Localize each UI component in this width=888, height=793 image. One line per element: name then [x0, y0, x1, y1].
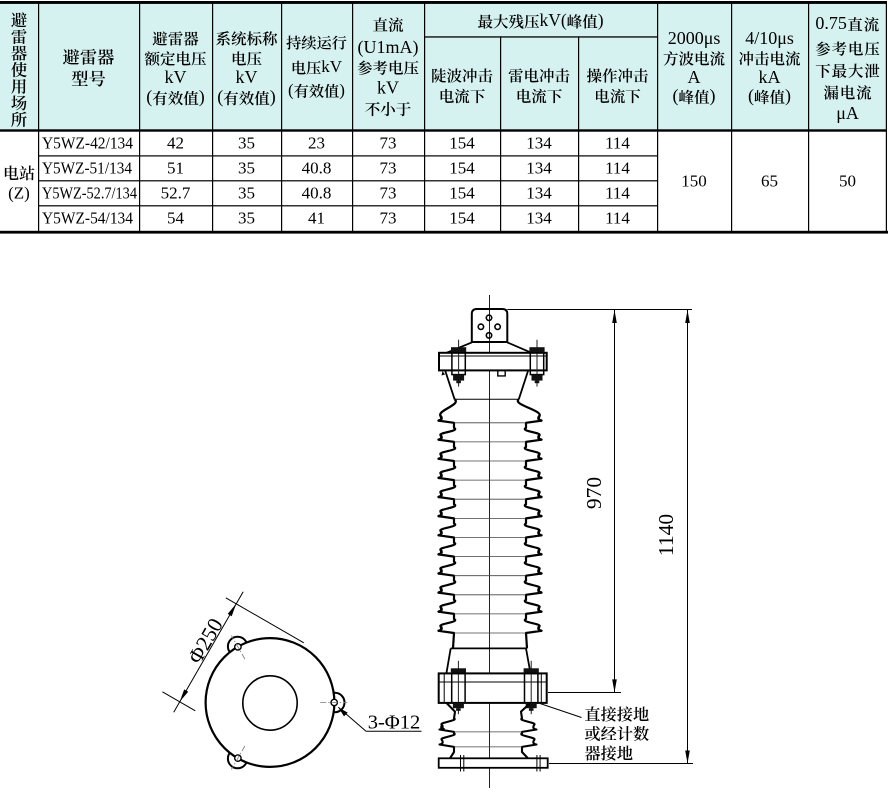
- svg-text:114: 114: [605, 184, 630, 203]
- svg-text:114: 114: [605, 134, 630, 153]
- svg-text:(: (: [288, 80, 294, 99]
- svg-text:41: 41: [308, 209, 325, 228]
- svg-text:2000μs: 2000μs: [668, 28, 721, 48]
- svg-text:(: (: [217, 87, 223, 108]
- svg-text:154: 154: [449, 159, 475, 178]
- svg-text:970: 970: [582, 477, 606, 509]
- svg-text:kV: kV: [165, 67, 187, 87]
- svg-text:35: 35: [238, 134, 255, 153]
- svg-text:kA: kA: [759, 67, 781, 87]
- svg-text:40.8: 40.8: [302, 159, 332, 178]
- svg-text:): ): [598, 10, 604, 30]
- svg-text:3-Φ12: 3-Φ12: [368, 711, 421, 733]
- svg-text:35: 35: [238, 184, 255, 203]
- svg-text:73: 73: [380, 134, 397, 153]
- svg-text:Y5WZ-51/134: Y5WZ-51/134: [42, 159, 132, 178]
- svg-text:154: 154: [449, 134, 475, 153]
- svg-text:150: 150: [681, 172, 707, 191]
- svg-text:1140: 1140: [654, 514, 678, 556]
- svg-text:134: 134: [526, 209, 552, 228]
- svg-text:): ): [710, 86, 716, 107]
- svg-text:kV: kV: [236, 67, 258, 87]
- svg-text:): ): [785, 86, 791, 107]
- svg-text:114: 114: [605, 159, 630, 178]
- svg-text:54: 54: [167, 209, 185, 228]
- svg-text:73: 73: [380, 209, 397, 228]
- svg-text:A: A: [688, 67, 701, 87]
- svg-text:(U1mA): (U1mA): [358, 37, 419, 58]
- svg-text:154: 154: [449, 209, 475, 228]
- svg-text:134: 134: [526, 184, 552, 203]
- svg-text:kV: kV: [377, 77, 399, 97]
- svg-text:23: 23: [308, 134, 325, 153]
- svg-text:52.7: 52.7: [161, 184, 191, 203]
- svg-text:154: 154: [449, 184, 475, 203]
- svg-text:65: 65: [761, 172, 778, 191]
- svg-text:(: (: [673, 86, 679, 107]
- svg-text:): ): [339, 80, 345, 99]
- svg-text:μA: μA: [836, 103, 859, 123]
- svg-text:134: 134: [526, 134, 552, 153]
- svg-text:114: 114: [605, 209, 630, 228]
- svg-text:Y5WZ-42/134: Y5WZ-42/134: [42, 134, 133, 153]
- svg-text:40.8: 40.8: [302, 184, 332, 203]
- svg-text:73: 73: [380, 184, 397, 203]
- svg-text:(: (: [146, 87, 152, 108]
- svg-text:): ): [270, 87, 276, 108]
- svg-text:35: 35: [238, 209, 255, 228]
- svg-text:(: (: [748, 86, 754, 107]
- svg-text:): ): [199, 87, 205, 108]
- svg-text:Y5WZ-54/134: Y5WZ-54/134: [42, 209, 133, 228]
- svg-text:Y5WZ-52.7/134: Y5WZ-52.7/134: [42, 184, 137, 203]
- svg-text:35: 35: [238, 159, 255, 178]
- svg-text:kV: kV: [321, 57, 343, 76]
- svg-text:(Z): (Z): [8, 183, 30, 202]
- svg-text:134: 134: [526, 159, 552, 178]
- svg-text:0.75: 0.75: [815, 13, 847, 33]
- svg-text:42: 42: [167, 134, 184, 153]
- svg-text:50: 50: [839, 172, 856, 191]
- svg-text:51: 51: [167, 159, 184, 178]
- svg-text:73: 73: [380, 159, 397, 178]
- svg-text:kV(: kV(: [540, 10, 567, 30]
- svg-text:4/10μs: 4/10μs: [745, 28, 794, 48]
